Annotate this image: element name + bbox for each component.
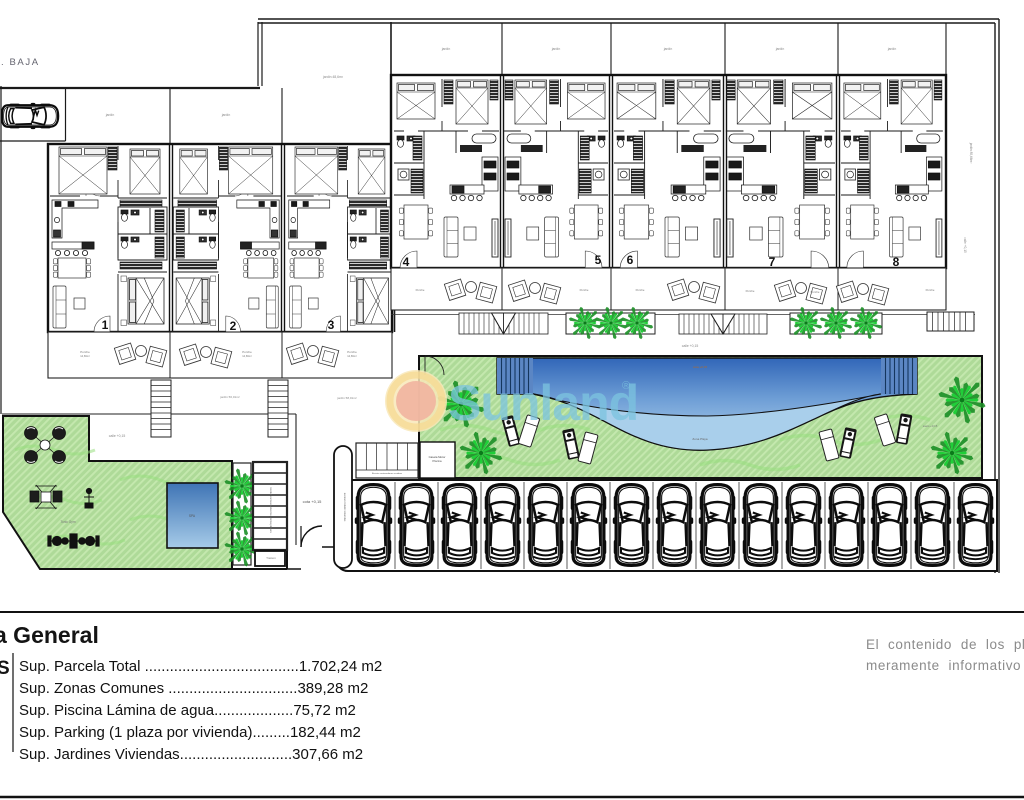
svg-text:8: 8 bbox=[893, 255, 900, 269]
svg-text:Piscina: Piscina bbox=[432, 459, 441, 463]
svg-text:jardín: jardín bbox=[221, 113, 231, 117]
svg-text:Porche: Porche bbox=[926, 288, 935, 292]
svg-text:5: 5 bbox=[595, 253, 602, 267]
svg-text:3: 3 bbox=[328, 318, 335, 332]
svg-text:jardín: jardín bbox=[663, 47, 673, 51]
svg-text:4: 4 bbox=[403, 255, 410, 269]
svg-text:6: 6 bbox=[627, 253, 634, 267]
svg-text:jardín: jardín bbox=[551, 47, 561, 51]
svg-text:. BAJA: . BAJA bbox=[1, 57, 40, 68]
svg-text:cota +0,15: cota +0,15 bbox=[303, 499, 323, 504]
svg-text:jardín: jardín bbox=[441, 47, 451, 51]
svg-text:S: S bbox=[0, 658, 10, 679]
svg-text:acceso rodado viviendas: acceso rodado viviendas bbox=[343, 493, 347, 522]
svg-text:2: 2 bbox=[230, 319, 237, 333]
svg-text:Trastero: Trastero bbox=[266, 556, 276, 560]
svg-text:Porche: Porche bbox=[242, 350, 252, 354]
svg-text:Sup. Jardines Viviendas.......: Sup. Jardines Viviendas.................… bbox=[19, 746, 363, 763]
svg-text:jardín 56,01m²: jardín 56,01m² bbox=[219, 395, 239, 399]
svg-text:Porche: Porche bbox=[347, 350, 357, 354]
svg-text:jardín 48,6m²: jardín 48,6m² bbox=[322, 75, 344, 79]
svg-text:14,69m²: 14,69m² bbox=[80, 354, 90, 358]
svg-text:Porche: Porche bbox=[80, 350, 90, 354]
svg-text:Porche: Porche bbox=[811, 290, 820, 294]
svg-text:jardín 58,01m²: jardín 58,01m² bbox=[336, 396, 356, 400]
svg-text:Recinto contenedores residuos: Recinto contenedores residuos bbox=[372, 472, 403, 475]
svg-text:jardín: jardín bbox=[775, 47, 785, 51]
svg-text:Tonic Gym: Tonic Gym bbox=[60, 520, 75, 524]
svg-text:jardín 85,66m²: jardín 85,66m² bbox=[969, 142, 973, 164]
svg-text:14,69m²: 14,69m² bbox=[347, 354, 357, 358]
svg-text:jardín: jardín bbox=[105, 113, 115, 117]
svg-text:Sup. Parcela Total ...........: Sup. Parcela Total .....................… bbox=[19, 658, 382, 675]
svg-text:Porche: Porche bbox=[580, 288, 589, 292]
svg-text:suelo +0,15: suelo +0,15 bbox=[923, 424, 938, 428]
svg-text:1: 1 bbox=[102, 318, 109, 332]
svg-text:calle +0,15: calle +0,15 bbox=[682, 344, 699, 348]
svg-text:Escalera acceso viviendas plan: Escalera acceso viviendas plantas primer… bbox=[269, 487, 272, 533]
svg-text:Zona Playa: Zona Playa bbox=[692, 437, 708, 441]
svg-text:7: 7 bbox=[769, 255, 776, 269]
svg-text:Sup. Zonas Comunes ...........: Sup. Zonas Comunes .....................… bbox=[19, 680, 368, 697]
svg-text:Porche: Porche bbox=[746, 289, 755, 293]
svg-text:jardín: jardín bbox=[887, 47, 897, 51]
svg-text:meramente informativo y p: meramente informativo y p bbox=[866, 658, 1024, 673]
svg-text:14,69m²: 14,69m² bbox=[242, 354, 252, 358]
svg-text:calle +0,15: calle +0,15 bbox=[109, 434, 126, 438]
svg-text:Sup. Parking (1 plaza por vivi: Sup. Parking (1 plaza por vivienda).....… bbox=[19, 724, 361, 741]
svg-text:Sup. Piscina Lámina de agua...: Sup. Piscina Lámina de agua.............… bbox=[19, 702, 356, 719]
svg-text:SPA: SPA bbox=[189, 514, 196, 518]
svg-text:Sunland: Sunland bbox=[448, 375, 638, 431]
svg-text:calle +0,15: calle +0,15 bbox=[963, 237, 967, 253]
svg-text:a General: a General bbox=[0, 622, 99, 648]
svg-text:®: ® bbox=[622, 380, 630, 392]
svg-text:Porche: Porche bbox=[636, 288, 645, 292]
svg-text:El contenido de los planos: El contenido de los planos bbox=[866, 637, 1024, 652]
svg-text:Porche: Porche bbox=[416, 288, 425, 292]
svg-text:cota +0,15: cota +0,15 bbox=[693, 365, 707, 369]
